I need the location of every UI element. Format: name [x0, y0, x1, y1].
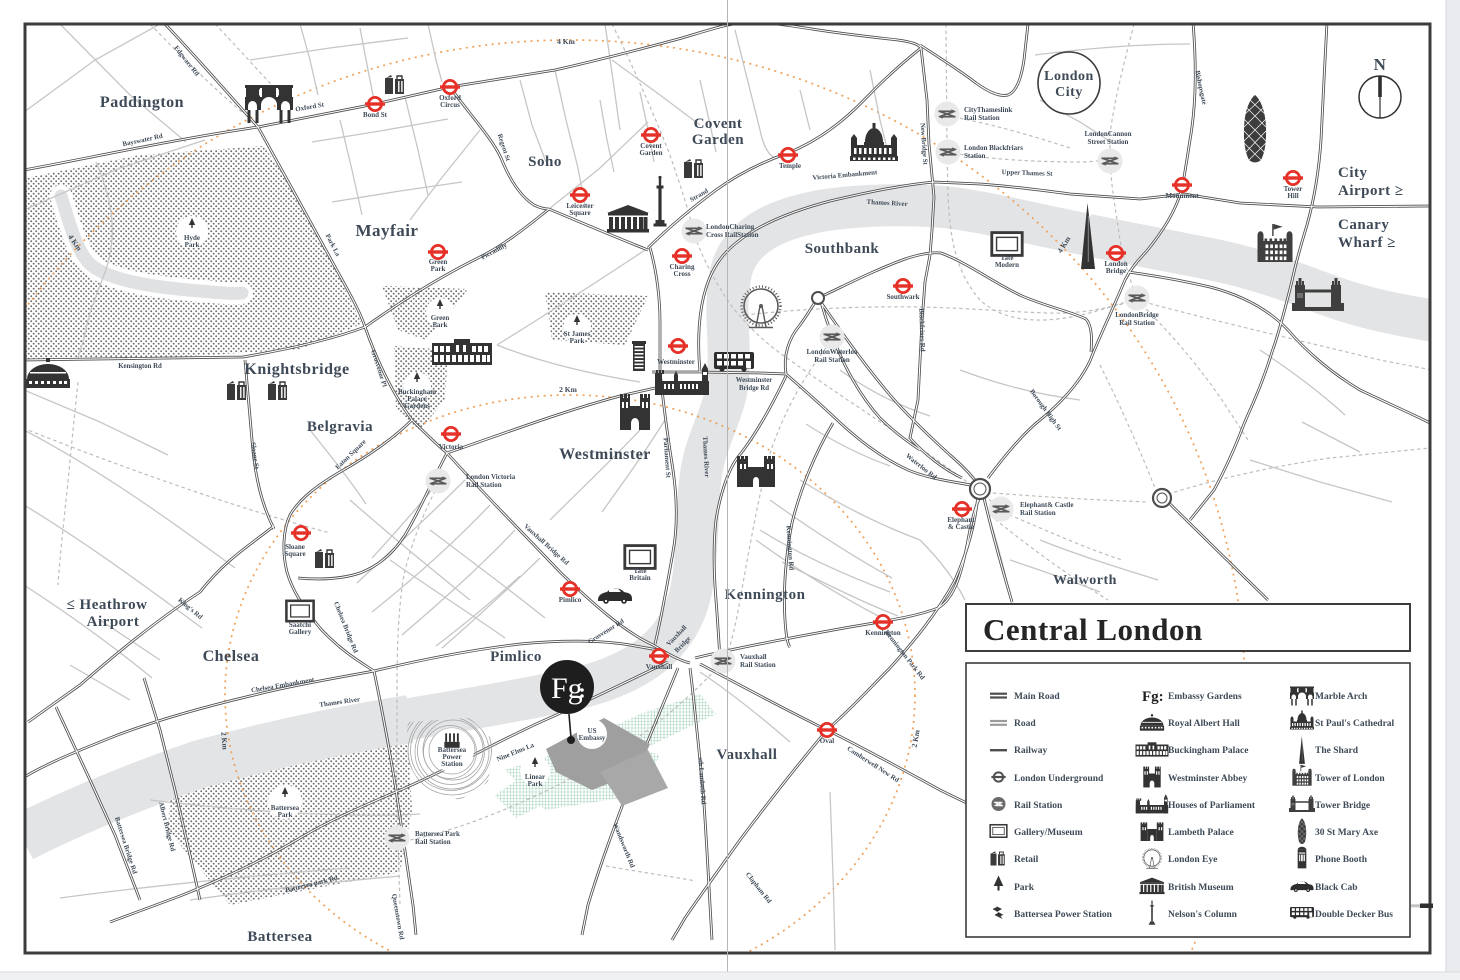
svg-text:The Shard: The Shard	[1315, 746, 1359, 756]
svg-text:Pimlico: Pimlico	[490, 649, 542, 665]
svg-text:Knightsbridge: Knightsbridge	[244, 361, 349, 378]
svg-text:Fg:: Fg:	[1142, 689, 1164, 705]
svg-text:London Eye: London Eye	[1168, 855, 1217, 865]
svg-text:Canary: Canary	[1338, 217, 1389, 233]
svg-text:Station: Station	[441, 760, 463, 768]
svg-text:Rail Station: Rail Station	[1119, 319, 1155, 327]
svg-text:Lambeth Palace: Lambeth Palace	[1168, 828, 1234, 838]
svg-text:Square: Square	[569, 209, 590, 217]
svg-text:N: N	[1374, 55, 1387, 74]
svg-text:London Blackfriars: London Blackfriars	[964, 144, 1023, 152]
svg-text:Hill: Hill	[1287, 192, 1298, 200]
svg-text:Phone Booth: Phone Booth	[1315, 855, 1368, 865]
svg-text:Bridge: Bridge	[1106, 267, 1126, 275]
svg-text:Tower Bridge: Tower Bridge	[1315, 801, 1370, 811]
svg-text:30 St Mary Axe: 30 St Mary Axe	[1315, 828, 1378, 838]
svg-text:Chelsea: Chelsea	[203, 648, 260, 665]
svg-text:Circus: Circus	[440, 101, 460, 109]
svg-text:Temple: Temple	[779, 162, 801, 170]
svg-text:Road: Road	[1014, 719, 1036, 729]
svg-text:Airport: Airport	[87, 614, 140, 630]
svg-text:Rail Station: Rail Station	[1020, 509, 1056, 517]
svg-text:Railway: Railway	[1014, 746, 1048, 756]
svg-text:Station: Station	[964, 152, 986, 160]
svg-text:CityThameslink: CityThameslink	[964, 106, 1012, 114]
svg-text:Westminster: Westminster	[657, 358, 695, 366]
svg-text:Kennington: Kennington	[725, 587, 806, 603]
svg-text:Southbank: Southbank	[805, 241, 880, 257]
svg-text:Soho: Soho	[528, 154, 562, 170]
svg-text:Rail Station: Rail Station	[814, 356, 850, 364]
svg-text:Garden: Garden	[640, 149, 663, 157]
svg-text:Belgravia: Belgravia	[307, 419, 373, 435]
svg-text:Pimlico: Pimlico	[559, 596, 582, 604]
svg-text:Park: Park	[528, 780, 543, 788]
svg-text:Modern: Modern	[995, 261, 1019, 269]
svg-text:Covent: Covent	[694, 116, 743, 132]
svg-text:Westminster Abbey: Westminster Abbey	[1168, 774, 1248, 784]
svg-text:Victoria: Victoria	[439, 443, 464, 451]
svg-text:Mayfair: Mayfair	[356, 221, 419, 240]
svg-text:Houses of Parliament: Houses of Parliament	[1168, 801, 1256, 811]
svg-text:Southwark: Southwark	[886, 293, 919, 301]
svg-text:British Museum: British Museum	[1168, 883, 1234, 893]
svg-text:Rail Station: Rail Station	[964, 114, 1000, 122]
svg-text:Britain: Britain	[629, 574, 650, 582]
svg-text:Gardens: Gardens	[404, 402, 430, 410]
svg-text:Walworth: Walworth	[1053, 573, 1117, 588]
svg-text:Main Road: Main Road	[1014, 692, 1060, 702]
svg-text:St Paul's Cathedral: St Paul's Cathedral	[1315, 719, 1395, 729]
svg-text:LondonBridge: LondonBridge	[1115, 311, 1159, 319]
svg-text:Park: Park	[185, 241, 200, 249]
svg-text:LondonCharing: LondonCharing	[706, 223, 755, 231]
svg-text:Marble Arch: Marble Arch	[1315, 692, 1368, 702]
svg-text:Oval: Oval	[820, 737, 834, 745]
svg-text:Bond St: Bond St	[363, 111, 388, 119]
svg-text:Rail Station: Rail Station	[1014, 801, 1063, 811]
svg-text:Cross: Cross	[674, 270, 691, 278]
svg-text:Embassy Gardens: Embassy Gardens	[1168, 692, 1242, 702]
svg-text:LondonCannon: LondonCannon	[1084, 130, 1131, 138]
svg-text:Park: Park	[433, 321, 448, 329]
svg-text:Embassy: Embassy	[579, 734, 606, 742]
svg-text:Elephant& Castle: Elephant& Castle	[1020, 501, 1073, 509]
svg-text:& Castle: & Castle	[948, 523, 974, 531]
svg-text:Retail: Retail	[1014, 855, 1039, 865]
svg-text:Garden: Garden	[692, 132, 744, 148]
svg-text:Black Cab: Black Cab	[1315, 883, 1358, 893]
svg-text:Rail Station: Rail Station	[415, 838, 451, 846]
svg-text:Westminster: Westminster	[736, 377, 773, 384]
svg-text:Park: Park	[278, 811, 293, 819]
svg-text:Paddington: Paddington	[100, 94, 184, 111]
svg-text:Gallery/Museum: Gallery/Museum	[1014, 828, 1083, 838]
svg-text:Gallery: Gallery	[289, 628, 312, 636]
svg-text:Park: Park	[1014, 883, 1035, 893]
svg-text:London: London	[1044, 69, 1094, 84]
svg-text:Vauxhall: Vauxhall	[717, 747, 778, 763]
svg-text:Bridge Rd: Bridge Rd	[739, 385, 769, 392]
svg-text:Airport ≥: Airport ≥	[1338, 183, 1404, 199]
svg-text:Battersea: Battersea	[247, 929, 312, 945]
svg-text:Wharf ≥: Wharf ≥	[1338, 235, 1396, 251]
svg-text:Tower of London: Tower of London	[1315, 774, 1385, 784]
svg-text:Park: Park	[431, 265, 446, 273]
svg-text:Westminster: Westminster	[559, 446, 651, 463]
svg-text:Double Decker Bus: Double Decker Bus	[1315, 910, 1393, 920]
svg-text:4 Km: 4 Km	[557, 37, 575, 46]
svg-text:Rail Station: Rail Station	[740, 661, 776, 669]
svg-text:Cross RailStation: Cross RailStation	[706, 231, 759, 239]
svg-text:Street Station: Street Station	[1088, 138, 1129, 146]
svg-text:Battersea Power Station: Battersea Power Station	[1014, 910, 1113, 920]
svg-text:LondonWaterloo: LondonWaterloo	[807, 348, 858, 356]
svg-text:Nelson's Column: Nelson's Column	[1168, 910, 1238, 920]
svg-text:London Victoria: London Victoria	[466, 473, 516, 481]
svg-text:City: City	[1055, 85, 1083, 100]
svg-text:City: City	[1338, 165, 1368, 181]
svg-text:Square: Square	[284, 550, 305, 558]
svg-text:Vauxhall: Vauxhall	[646, 663, 673, 671]
svg-text:Park: Park	[570, 337, 585, 345]
svg-text:London Underground: London Underground	[1014, 774, 1104, 784]
svg-text:2 Km: 2 Km	[559, 385, 577, 394]
svg-text:Vauxhall: Vauxhall	[740, 653, 767, 661]
svg-text:Monument: Monument	[1165, 192, 1199, 200]
svg-text:Buckingham Palace: Buckingham Palace	[1168, 746, 1249, 756]
svg-text:Rail Station: Rail Station	[466, 481, 502, 489]
svg-text:Kensington Rd: Kensington Rd	[118, 363, 162, 370]
svg-text:Battersea Park: Battersea Park	[415, 830, 460, 838]
svg-text:≤ Heathrow: ≤ Heathrow	[67, 597, 148, 613]
svg-text:2 Km: 2 Km	[219, 732, 230, 751]
svg-text:Central London: Central London	[983, 612, 1203, 647]
svg-text:Royal Albert Hall: Royal Albert Hall	[1168, 719, 1240, 729]
